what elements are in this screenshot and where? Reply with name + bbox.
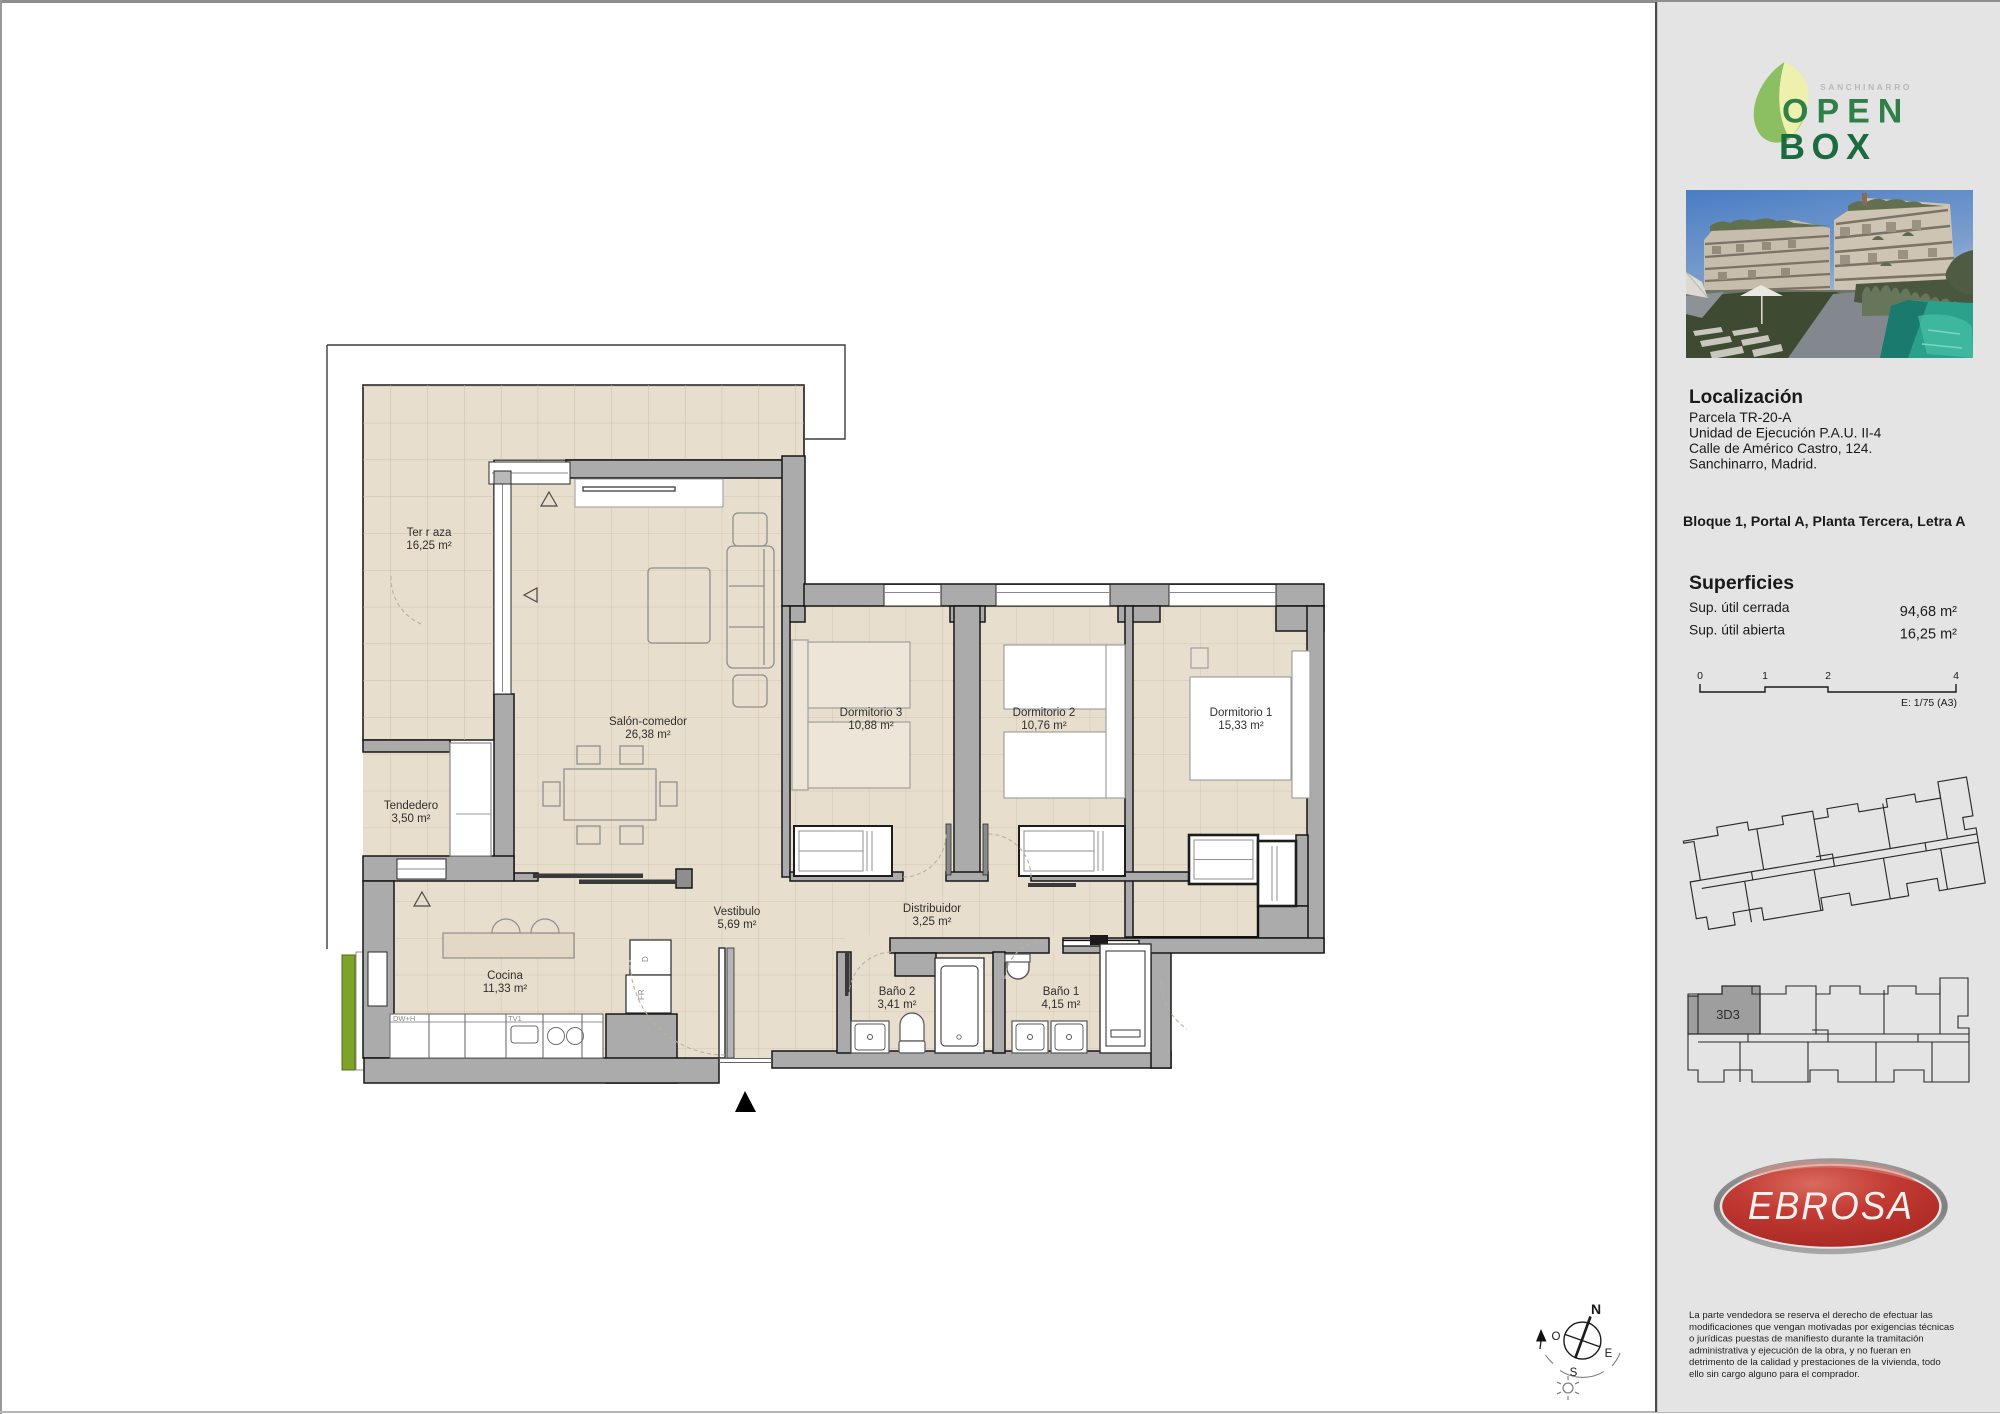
svg-text:Parcela TR-20-A: Parcela TR-20-A <box>1689 410 1792 425</box>
svg-text:4,15 m²: 4,15 m² <box>1042 999 1081 1011</box>
svg-text:O: O <box>1552 1331 1561 1343</box>
svg-text:ello sin cargo alguno para el: ello sin cargo alguno para el comprador. <box>1689 1369 1860 1380</box>
svg-text:16,25 m²: 16,25 m² <box>406 540 452 552</box>
svg-text:Dormitorio 2: Dormitorio 2 <box>1013 707 1076 719</box>
svg-text:Sanchinarro, Madrid.: Sanchinarro, Madrid. <box>1689 457 1817 472</box>
svg-text:modificaciones que vengan moti: modificaciones que vengan motivadas por … <box>1689 1322 1954 1333</box>
svg-text:2: 2 <box>1825 670 1831 682</box>
svg-text:Dormitorio 3: Dormitorio 3 <box>840 707 903 719</box>
svg-text:Superficies: Superficies <box>1689 572 1794 594</box>
svg-text:3,41 m²: 3,41 m² <box>878 999 917 1011</box>
svg-text:BOX: BOX <box>1779 126 1877 167</box>
svg-text:10,76 m²: 10,76 m² <box>1021 720 1067 732</box>
svg-text:D: D <box>641 956 650 962</box>
svg-text:3D3: 3D3 <box>1716 1007 1740 1022</box>
svg-text:Cocina: Cocina <box>487 970 523 982</box>
svg-text:OPEN: OPEN <box>1782 93 1910 131</box>
svg-text:11,33 m²: 11,33 m² <box>483 983 528 995</box>
svg-text:Tendedero: Tendedero <box>384 800 438 812</box>
svg-text:E: 1/75 (A3): E: 1/75 (A3) <box>1901 697 1957 709</box>
svg-text:DW+H: DW+H <box>393 1014 415 1023</box>
svg-text:Ter r aza: Ter r aza <box>407 527 452 539</box>
svg-text:Sup. útil abierta: Sup. útil abierta <box>1689 623 1785 638</box>
svg-text:Baño 1: Baño 1 <box>1043 986 1079 998</box>
svg-text:TV1: TV1 <box>508 1014 522 1023</box>
svg-text:3,25 m²: 3,25 m² <box>913 916 952 928</box>
svg-text:N: N <box>1591 1301 1601 1317</box>
svg-text:detrimento de la calidad y pre: detrimento de la calidad y prestaciones … <box>1689 1357 1941 1368</box>
svg-text:Vestibulo: Vestibulo <box>714 906 761 918</box>
svg-text:o jurídicas puestas de manifie: o jurídicas puestas de manifiesto durant… <box>1689 1334 1924 1345</box>
svg-text:SANCHINARRO: SANCHINARRO <box>1820 82 1912 92</box>
svg-text:Distribuidor: Distribuidor <box>903 903 961 915</box>
svg-text:0: 0 <box>1697 670 1703 682</box>
svg-text:10,88 m²: 10,88 m² <box>848 720 894 732</box>
svg-text:3,50 m²: 3,50 m² <box>392 813 431 825</box>
svg-text:4: 4 <box>1953 670 1959 682</box>
svg-text:Salón-comedor: Salón-comedor <box>609 716 687 728</box>
svg-text:FR: FR <box>637 989 646 1000</box>
svg-text:E: E <box>1605 1348 1613 1360</box>
svg-text:16,25 m²: 16,25 m² <box>1900 627 1957 643</box>
svg-text:Dormitorio 1: Dormitorio 1 <box>1210 707 1273 719</box>
svg-text:Unidad de Ejecución P.A.U. II-: Unidad de Ejecución P.A.U. II-4 <box>1689 426 1882 441</box>
svg-text:EBROSA: EBROSA <box>1748 1184 1914 1228</box>
svg-text:Baño 2: Baño 2 <box>879 986 915 998</box>
svg-text:5,69 m²: 5,69 m² <box>718 919 757 931</box>
svg-text:15,33 m²: 15,33 m² <box>1218 720 1264 732</box>
svg-text:1: 1 <box>1762 670 1768 682</box>
svg-text:administrativa y ejecución de: administrativa y ejecución de la obra, y… <box>1689 1345 1911 1356</box>
svg-text:La parte vendedora se reserva: La parte vendedora se reserva el derecho… <box>1689 1310 1933 1321</box>
svg-text:Bloque 1, Portal A, Planta Ter: Bloque 1, Portal A, Planta Tercera, Letr… <box>1683 514 1966 530</box>
svg-text:Calle de Américo Castro, 124.: Calle de Américo Castro, 124. <box>1689 441 1872 456</box>
svg-text:94,68 m²: 94,68 m² <box>1900 604 1957 620</box>
svg-text:Sup. útil cerrada: Sup. útil cerrada <box>1689 600 1790 615</box>
svg-text:26,38 m²: 26,38 m² <box>625 729 671 741</box>
svg-text:Localización: Localización <box>1689 387 1803 408</box>
